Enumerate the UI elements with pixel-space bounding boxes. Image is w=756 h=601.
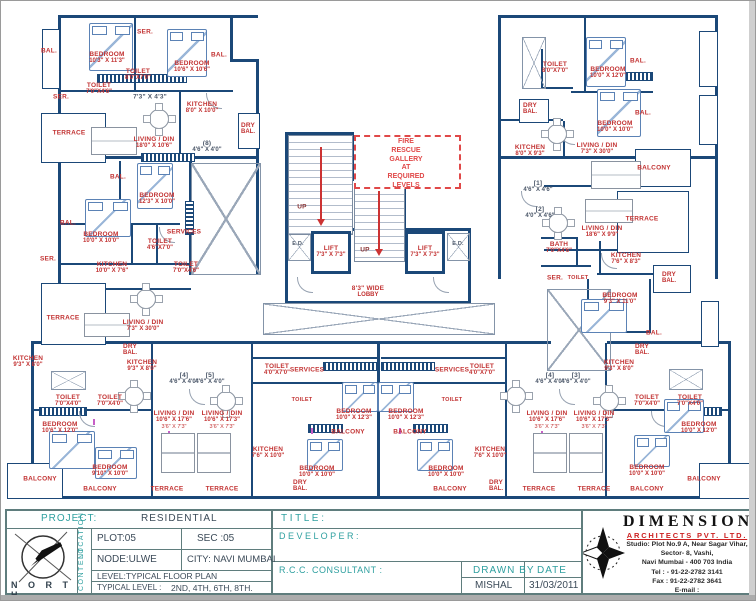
room-label: TOILET (568, 275, 589, 281)
content-strip-label: CONTENT (78, 561, 85, 591)
wall (498, 15, 501, 159)
company-subtitle: ARCHITECTS PVT. LTD. (623, 531, 751, 540)
furniture-sofa (161, 433, 195, 473)
room-label: KITCHEN9'3" X 8'0" (604, 359, 634, 373)
room-label: BEDROOM10'0" X 12'0" (681, 421, 717, 435)
furniture-dining-table (500, 380, 532, 412)
room-label: BEDROOM10'6" X 10'6" (174, 60, 210, 74)
room-label: [2]4'0" X 4'6" (525, 206, 554, 220)
furniture-sofa (533, 433, 567, 473)
room-label: [1]4'6" X 4'6" (523, 180, 552, 194)
sill-mark (93, 419, 95, 425)
room-label: KITCHEN7'6" X 8'3" (611, 252, 641, 266)
window-hatch (323, 362, 377, 371)
room-label: SER. (40, 255, 56, 262)
floor-plan-sheet: BAL.BEDROOM10'3" X 11'3"SER.TOILET8'0"X7… (0, 0, 756, 601)
wall (230, 59, 259, 62)
room-label: TERRACE (206, 485, 239, 492)
room-label: KITCHEN10'0" X 7'6" (96, 261, 129, 275)
room-label: BATH7'0"X4'6" (546, 241, 572, 255)
page-edge-right (749, 1, 756, 601)
wall (498, 159, 501, 279)
room-label: SER. (547, 274, 563, 281)
fire-rescue-label: FIRE RESCUE GALLERY AT REQUIRED LEVELS (388, 138, 425, 191)
room-label: KITCHEN8'0" X 9'3" (515, 144, 545, 158)
furniture-bed (634, 435, 670, 467)
room-label: BEDROOM10'0" X 10'0" (299, 465, 335, 479)
room-label: LIVING / DIN18'0" X 10'6" (134, 136, 175, 150)
wall (179, 92, 181, 156)
wall (230, 15, 233, 62)
wall (58, 90, 233, 92)
room-label: BEDROOM12'3" X 10'0" (139, 192, 175, 206)
level-field: LEVEL:TYPICAL FLOOR PLAN (97, 571, 217, 581)
room-label: UP (297, 203, 306, 210)
room-label: DRYBAL. (523, 102, 537, 116)
room-label: BALCONY (687, 475, 721, 482)
room-label: TERRACE (151, 485, 184, 492)
room-label: SERVICES (167, 228, 201, 235)
north-compass: N O R T H (9, 530, 75, 592)
wall (253, 357, 379, 359)
typical-level-value: 2ND, 4TH, 6TH, 8TH. (171, 583, 253, 593)
door-arc (189, 389, 205, 405)
node-field: NODE:ULWE (97, 554, 157, 565)
room-label: BEDROOM10'0" X 10'0" (597, 120, 633, 134)
room-label: LIVING / DIN10'6" X 17'3"3'6" X 7'3" (574, 410, 615, 430)
room-label: DRYBAL. (293, 479, 307, 493)
room-label: BALCONY (83, 485, 117, 492)
room-label: BEDROOM10'0" X 12'3" (388, 408, 424, 422)
wall (58, 15, 258, 18)
room-label: [4]4'6" X 4'0" (535, 372, 564, 386)
room-label: KITCHEN7'6" X 10'0" (252, 446, 285, 460)
room-label: TERRACE (47, 314, 80, 321)
room-label: 8'3" WIDELOBBY (352, 285, 384, 299)
wall (31, 341, 551, 344)
room-label: [3]4'6" X 4'0" (561, 372, 590, 386)
room-label: TOILET8'0"X7'0" (542, 61, 568, 75)
light-well (51, 371, 86, 390)
room-label: DRYBAL. (662, 271, 676, 285)
room-label: BALCONY (23, 475, 57, 482)
room-label: BAL. (211, 51, 227, 58)
room-label: BEDROOM10'0" X 10'0" (428, 465, 464, 479)
room-label: UP (360, 246, 369, 253)
room-label: DRYBAL. (489, 479, 503, 493)
stair-arrow-head (375, 249, 383, 256)
light-well (191, 163, 261, 275)
window-hatch (381, 362, 435, 371)
balcony-outline (42, 29, 60, 89)
floor-plan-drawing: BAL.BEDROOM10'3" X 11'3"SER.TOILET8'0"X7… (1, 1, 756, 509)
stair-direction-arrow (378, 191, 380, 249)
room-label: KITCHEN9'3" X 8'0" (13, 355, 43, 369)
room-label: KITCHEN9'3" X 8'0" (127, 359, 157, 373)
room-label: SER. (137, 28, 153, 35)
room-label: BEDROOM9'10" X 10'0" (92, 464, 128, 478)
room-label: TOILET7'0"X4'0" (55, 394, 81, 408)
room-label: LIVING / DIN10'6" X 17'6"3'6" X 7'3" (154, 410, 195, 430)
door-arc (297, 277, 313, 293)
room-label: BEDROOM9'3" X 11'0" (602, 292, 637, 306)
room-label: DRYBAL. (241, 122, 255, 136)
plot-field: PLOT:05 (97, 533, 136, 544)
project-label: PROJECT: (41, 513, 97, 524)
furniture-sofa (569, 433, 603, 473)
balcony-outline (699, 95, 718, 145)
company-address: Studio: Plot No.9 A, Near Sagar Vihar,Se… (623, 540, 751, 601)
room-label: BAL. (646, 329, 662, 336)
date-value: 31/03/2011 (529, 580, 578, 591)
room-label: BALCONY (630, 485, 664, 492)
furniture-bed (49, 431, 95, 469)
drawn-by-value: MISHAL (475, 580, 512, 591)
furniture-sofa (91, 127, 137, 155)
sec-field: SEC :05 (197, 533, 234, 544)
project-value: RESIDENTIAL (141, 513, 218, 524)
room-label: KITCHEN8'0" X 10'0" (186, 101, 219, 115)
room-label: BEDROOM10'3" X 11'3" (89, 51, 125, 65)
room-label: BAL. (110, 173, 126, 180)
room-label: TOILET7'0"X4'0" (677, 394, 703, 408)
wall (576, 239, 578, 267)
room-label: TOILET (442, 397, 463, 403)
door-arc (559, 389, 575, 405)
room-label: LIVING / DIN10'6" X 17'3"3'6" X 7'3" (202, 410, 243, 430)
date-label: DATE (537, 565, 567, 576)
room-label: (8)4'6" X 4'0" (192, 140, 221, 154)
wall (381, 357, 507, 359)
room-label: 7'3" X 4'3" (133, 93, 167, 100)
room-label: BAL. (60, 219, 76, 226)
room-label: LIVING / DIN10'6" X 17'6"3'6" X 7'3" (527, 410, 568, 430)
wall (251, 343, 253, 497)
drawn-by-label: DRAWN BY (473, 565, 535, 576)
room-label: LIVING / DIN7'3" X 30'0" (123, 319, 164, 333)
wall (377, 343, 380, 497)
room-label: TOILET (292, 397, 313, 403)
room-label: LIVING / DIN18'6" X 9'9" (582, 225, 623, 239)
room-label: LIFT7'3" X 7'3" (316, 245, 345, 259)
developer-label: D E V E L O P E R : (279, 531, 359, 541)
room-label: BAL. (630, 57, 646, 64)
furniture-dining-table (130, 283, 162, 315)
page-edge-bottom (1, 595, 756, 601)
room-label: [4]4'6" X 4'0" (169, 372, 198, 386)
room-label: DRYBAL. (123, 343, 137, 357)
rcc-consultant-label: R.C.C. CONSULTANT : (279, 565, 383, 575)
company-logo-compass (583, 525, 627, 586)
wall (597, 273, 653, 275)
room-label: DRYBAL. (635, 343, 649, 357)
room-label: SERVICES (290, 366, 324, 373)
room-label: TOILET4'0"X7'0" (469, 363, 495, 377)
wall (131, 223, 133, 265)
room-label: BAL. (635, 109, 651, 116)
stair-arrow-head (317, 219, 325, 226)
room-label: TOILET7'0"X4'0" (634, 394, 660, 408)
room-label: BEDROOM10'0" X 12'0" (590, 66, 626, 80)
room-label: BALCONY (393, 428, 427, 435)
furniture-sofa (591, 161, 641, 189)
furniture-sofa (197, 433, 231, 473)
balcony-outline (699, 31, 718, 87)
room-label: BEDROOM10'0" X 12'3" (336, 408, 372, 422)
room-label: TERRACE (53, 129, 86, 136)
window-hatch (141, 153, 195, 162)
wall (498, 15, 718, 18)
furniture-dining-table (143, 103, 175, 135)
room-label: TERRACE (578, 485, 611, 492)
door-arc (433, 277, 449, 293)
title-block: PROJECT: RESIDENTIAL PLOT:05 SEC :05 NOD… (1, 509, 756, 601)
company-name: DIMENSIONS (623, 513, 751, 531)
room-label: BALCONY (433, 485, 467, 492)
room-label: BALCONY (637, 164, 671, 171)
room-label: SERVICES (435, 366, 469, 373)
room-label: TOILET4'0"X7'0" (264, 363, 290, 377)
room-label: TERRACE (626, 215, 659, 222)
room-label: BEDROOM10'0" X 10'0" (83, 231, 119, 245)
sill-mark (311, 428, 313, 434)
stair-direction-arrow (320, 147, 322, 219)
room-label: TOILET7'0"X4'6" (86, 82, 112, 96)
typical-level-label: TYPICAL LEVEL : (97, 583, 161, 592)
room-label: LIFT7'3" X 7'3" (410, 245, 439, 259)
wall (31, 496, 729, 499)
room-label: [5]4'6" X 4'0" (195, 372, 224, 386)
furniture-dining-table (541, 118, 573, 150)
room-label: TOILET7'0"X4'6" (173, 261, 199, 275)
balcony-outline (701, 301, 719, 347)
city-field: CITY: NAVI MUMBAI (187, 554, 276, 565)
room-label: TOILET4'6"X7'0" (147, 238, 173, 252)
wall (649, 279, 651, 333)
company-block: DIMENSIONS ARCHITECTS PVT. LTD. Studio: … (583, 511, 751, 593)
wall (541, 265, 591, 267)
room-label: SER. (53, 93, 69, 100)
room-label: TERRACE (523, 485, 556, 492)
room-label: BAL. (41, 47, 57, 54)
title-label: T I T L E : (281, 513, 324, 524)
room-label: LIVING / DIN7'3" X 30'0" (577, 142, 618, 156)
room-label: BEDROOM10'6" X 12'0" (42, 421, 78, 435)
room-label: BALCONY (331, 428, 365, 435)
room-label: BEDROOM10'0" X 10'0" (629, 464, 665, 478)
wall (505, 343, 507, 497)
room-label: TOILET8'0"X7'0" (125, 68, 151, 82)
light-well (263, 303, 495, 335)
room-label: KITCHEN7'6" X 10'0" (474, 446, 507, 460)
light-well (669, 369, 703, 390)
wall (715, 159, 718, 279)
room-label: E.D. (452, 241, 464, 247)
room-label: E.D. (292, 241, 304, 247)
room-label: TOILET7'0"X4'0" (97, 394, 123, 408)
